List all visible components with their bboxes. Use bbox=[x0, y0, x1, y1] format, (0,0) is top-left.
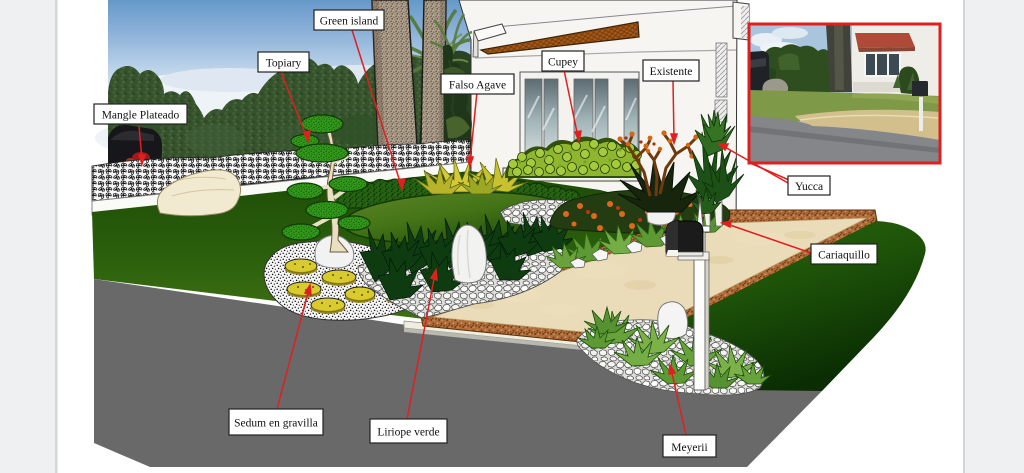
svg-text:Topiary: Topiary bbox=[266, 58, 302, 70]
svg-text:Sedum en gravilla: Sedum en gravilla bbox=[234, 418, 318, 430]
svg-text:Yucca: Yucca bbox=[795, 181, 823, 193]
svg-text:Mangle Plateado: Mangle Plateado bbox=[102, 110, 180, 122]
svg-text:Meyerii: Meyerii bbox=[671, 442, 707, 454]
svg-text:Cupey: Cupey bbox=[548, 57, 578, 69]
svg-text:Green island: Green island bbox=[320, 16, 379, 28]
svg-text:Falso Agave: Falso Agave bbox=[449, 80, 506, 92]
svg-text:Cariaquillo: Cariaquillo bbox=[818, 250, 870, 262]
svg-text:Existente: Existente bbox=[650, 66, 693, 78]
svg-text:Liriope verde: Liriope verde bbox=[377, 427, 439, 439]
